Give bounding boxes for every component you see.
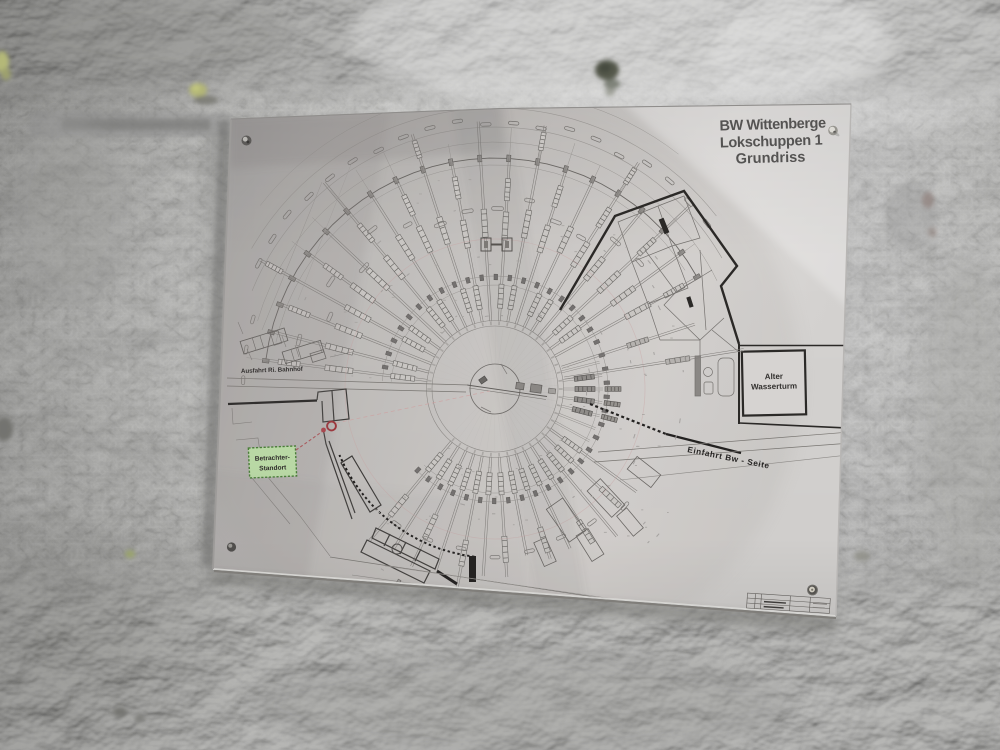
svg-text:Alter: Alter xyxy=(765,372,783,381)
svg-text:Wasserturm: Wasserturm xyxy=(751,382,797,392)
